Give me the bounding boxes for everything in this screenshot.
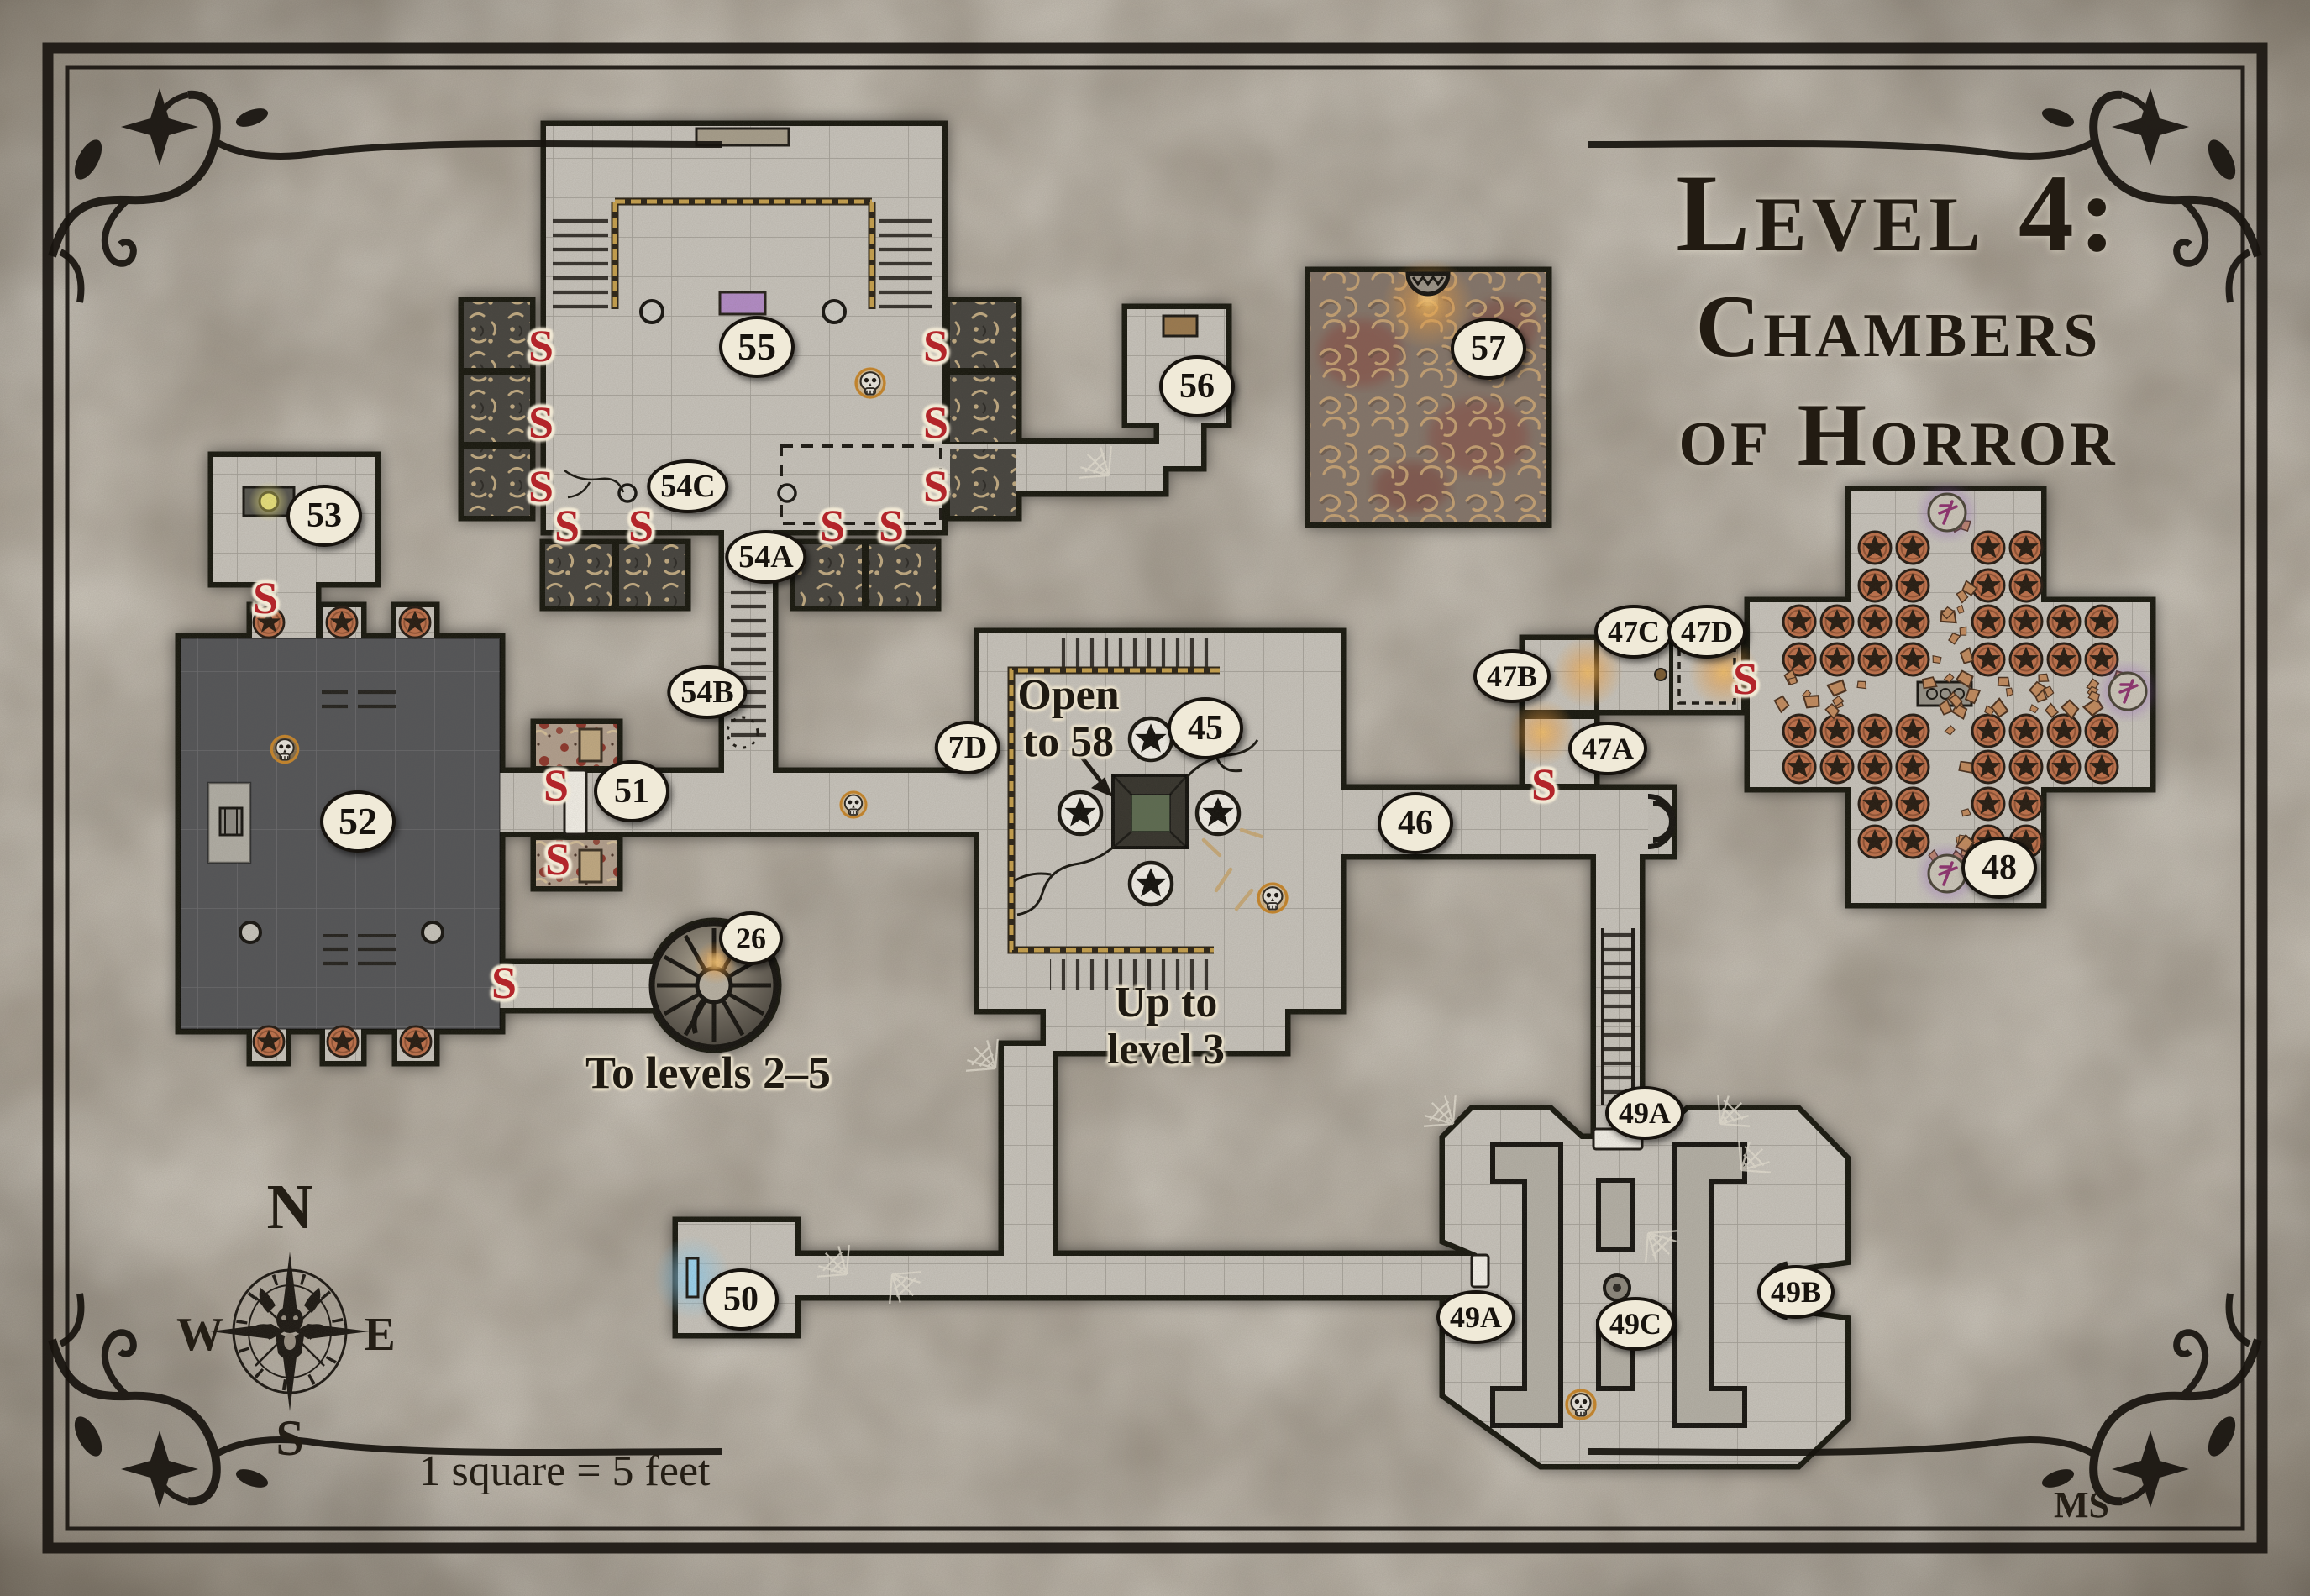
- room-badge-54A: 54A: [725, 530, 806, 584]
- secret-door-marker: S: [1733, 656, 1758, 701]
- compass-west-label: W: [176, 1311, 223, 1358]
- room-badge-50: 50: [703, 1268, 779, 1331]
- room-badge-47C: 47C: [1594, 605, 1673, 659]
- compass-north-label: N: [267, 1175, 313, 1239]
- secret-door-marker: S: [491, 960, 517, 1005]
- secret-door-marker: S: [923, 323, 948, 369]
- note-to-levels-2-5: To levels 2–5: [585, 1048, 831, 1097]
- note-open-to-58: Open to 58: [1017, 672, 1119, 766]
- secret-door-marker: S: [923, 400, 948, 445]
- room-badge-57: 57: [1451, 318, 1526, 380]
- room-badge-48: 48: [1961, 837, 2037, 899]
- note-line: to 58: [1017, 719, 1119, 766]
- secret-door-marker: S: [253, 575, 278, 621]
- room-badge-47A: 47A: [1568, 722, 1647, 775]
- room-badge-49A-left: 49A: [1436, 1290, 1515, 1344]
- room-badge-46: 46: [1378, 792, 1453, 854]
- room-badge-51: 51: [594, 760, 669, 822]
- room-badge-26: 26: [719, 911, 783, 965]
- room-badge-47D: 47D: [1667, 605, 1746, 659]
- room-badge-55: 55: [719, 316, 795, 378]
- secret-door-marker: S: [528, 323, 554, 369]
- compass-east-label: E: [364, 1311, 395, 1358]
- room-badge-53: 53: [286, 485, 362, 547]
- secret-door-marker: S: [528, 464, 554, 509]
- cartographer-signature: MS: [2054, 1487, 2109, 1524]
- room-badge-54B: 54B: [667, 665, 747, 719]
- scale-note: 1 square = 5 feet: [419, 1450, 711, 1494]
- secret-door-marker: S: [528, 400, 554, 445]
- secret-door-marker: S: [554, 503, 580, 549]
- room-badge-49C: 49C: [1596, 1297, 1675, 1351]
- secret-door-marker: S: [628, 503, 654, 549]
- secret-door-marker: S: [543, 763, 569, 808]
- map-title: Level 4: Chambers of Horror: [1625, 155, 2171, 489]
- note-line: Open: [1017, 672, 1119, 719]
- room-badge-47B: 47B: [1473, 649, 1551, 703]
- secret-door-marker: S: [879, 503, 904, 549]
- room-badge-56: 56: [1159, 355, 1235, 417]
- secret-door-marker: S: [1531, 762, 1557, 807]
- title-line-3: of Horror: [1625, 381, 2171, 489]
- room-badge-54C: 54C: [647, 459, 728, 513]
- title-line-2: Chambers: [1625, 272, 2171, 381]
- room-badge-49B: 49B: [1757, 1265, 1835, 1319]
- note-line: level 3: [1107, 1026, 1225, 1074]
- secret-door-marker: S: [545, 837, 570, 882]
- room-badge-52: 52: [320, 790, 396, 853]
- note-up-to-level-3: Up to level 3: [1107, 979, 1225, 1074]
- room-badge-45: 45: [1168, 697, 1243, 759]
- note-line: Up to: [1107, 979, 1225, 1026]
- secret-door-marker: S: [820, 503, 845, 549]
- room-badge-7D: 7D: [935, 721, 1000, 774]
- compass-south-label: S: [276, 1413, 303, 1463]
- secret-door-marker: S: [923, 464, 948, 509]
- title-line-1: Level 4:: [1625, 155, 2171, 272]
- room-badge-49A-top: 49A: [1605, 1086, 1684, 1140]
- dungeon-map: Level 4: Chambers of Horror 55 54C 54A 5…: [0, 0, 2310, 1596]
